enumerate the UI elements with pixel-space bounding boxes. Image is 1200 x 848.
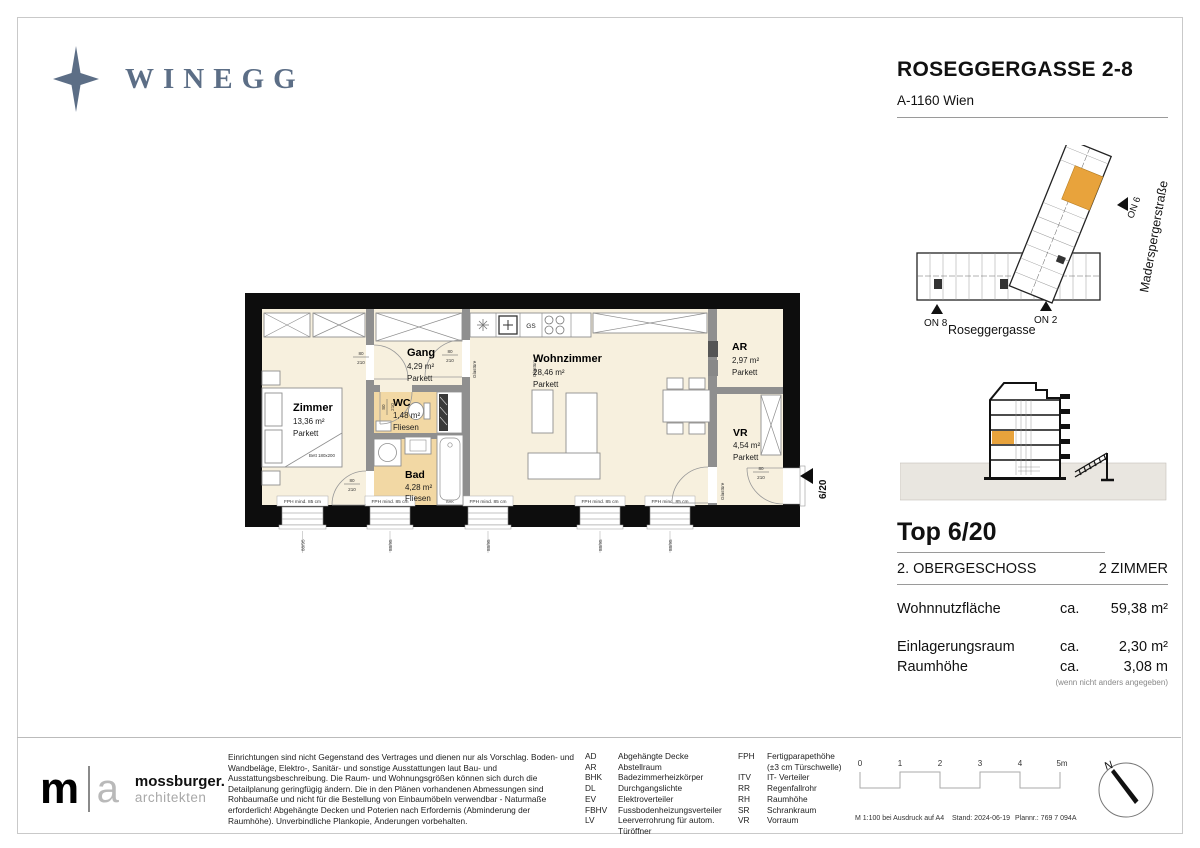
svg-text:Parkett: Parkett [732, 368, 758, 377]
svg-text:Stand: 2024-06-19: Stand: 2024-06-19 [952, 815, 1010, 822]
unit-title: Top 6/20 [897, 518, 1105, 553]
legend-row: RRRegenfallrohr [738, 783, 863, 794]
svg-text:0: 0 [858, 759, 863, 768]
site-marker-on6: ON 6 [1117, 195, 1143, 220]
site-plan: ON 8 ON 2 ON 6 Roseggergasse Madersperge… [900, 145, 1180, 345]
legend-label: Vorraum [767, 815, 798, 826]
legend-label: Schrankraum [767, 805, 816, 816]
svg-text:88/95: 88/95 [668, 539, 673, 551]
floor-plan: FPH mind. 85 cm 88/95 FPH mind. 85 cm 88… [240, 285, 830, 575]
unit-panel: Top 6/20 2. OBERGESCHOSS 2 ZIMMER Wohnnu… [897, 518, 1168, 687]
legend-label: IT- Verteiler [767, 772, 809, 783]
section-drawing [900, 370, 1170, 510]
svg-text:80: 80 [447, 349, 453, 354]
svg-text:80: 80 [358, 351, 364, 356]
legend-row: ARAbstellraum [585, 762, 737, 773]
dishwasher-label: GS [526, 323, 536, 330]
disclaimer: Einrichtungen sind nicht Gegenstand des … [228, 752, 576, 826]
legend-row: VRVorraum [738, 815, 863, 826]
scale-and-north: 0 1 2 3 4 5m M 1:100 bei Ausdruck auf A4… [850, 748, 1180, 838]
svg-text:6/20: 6/20 [818, 479, 829, 499]
glass-door-label: Glastüre [720, 482, 725, 500]
brand-name: WINEGG [125, 63, 305, 96]
svg-text:M 1:100 bei Ausdruck auf A4: M 1:100 bei Ausdruck auf A4 [855, 815, 944, 822]
metric-label: Einlagerungsraum [897, 639, 1060, 655]
legend-abbr: VR [738, 815, 767, 826]
bathtub: BHK [437, 435, 463, 505]
svg-text:Parkett: Parkett [407, 374, 433, 383]
legend-label: Abstellraum [618, 762, 662, 773]
legend-label: Regenfallrohr [767, 783, 817, 794]
legend-label: Fertigparapethöhe [767, 751, 835, 762]
svg-text:1: 1 [898, 759, 903, 768]
metric-value: 2,30 m² [1094, 639, 1168, 655]
svg-text:3: 3 [978, 759, 983, 768]
metric-wohnnutzflaeche: Wohnnutzfläche ca. 59,38 m² [897, 601, 1168, 617]
svg-text:FPH mind. 85 cm: FPH mind. 85 cm [371, 499, 408, 505]
svg-text:13,36 m²: 13,36 m² [293, 417, 325, 426]
nightstand [262, 471, 280, 485]
print-info: M 1:100 bei Ausdruck auf A4 Stand: 2024-… [855, 815, 1077, 822]
svg-text:FPH mind. 85 cm: FPH mind. 85 cm [469, 499, 506, 505]
metric-value: 3,08 m [1094, 659, 1168, 675]
legend-abbr: DL [585, 783, 618, 794]
legend-abbr: LV [585, 815, 618, 836]
svg-text:VR: VR [733, 427, 748, 439]
svg-text:4,28 m²: 4,28 m² [405, 483, 432, 492]
svg-text:2: 2 [938, 759, 943, 768]
architect-sub: architekten [135, 790, 225, 805]
street-maderspergerstrasse: Maderspergerstraße [1137, 180, 1170, 294]
svg-text:Gang: Gang [407, 347, 435, 359]
legend-abbr: FPH [738, 751, 767, 762]
legend-row: RHRaumhöhe [738, 794, 863, 805]
svg-text:Bad: Bad [405, 469, 425, 481]
metric-raumhoehe: Raumhöhe ca. 3,08 m [897, 659, 1168, 675]
washing-machine [374, 439, 401, 466]
legend-row: FBHVFussbodenheizungsverteiler [585, 805, 737, 816]
legend-row: (±3 cm Türschwelle) [738, 762, 863, 773]
legend-label: Leerverrohrung für autom. Türöffner [618, 815, 737, 836]
legend-label: Abgehängte Decke [618, 751, 689, 762]
legend-row: DLDurchgangslichte [585, 783, 737, 794]
svg-text:4,54 m²: 4,54 m² [733, 441, 760, 450]
metric-label: Raumhöhe [897, 659, 1060, 675]
room-label-gang: Gang 4,29 m² Parkett [407, 347, 435, 383]
architect-logo-a: a [97, 771, 119, 807]
svg-text:88/95: 88/95 [388, 539, 393, 551]
legend-abbr: AR [585, 762, 618, 773]
svg-text:4,29 m²: 4,29 m² [407, 362, 434, 371]
brand-logo: WINEGG [53, 46, 305, 112]
sink-basin-icon [499, 316, 517, 334]
legend-row: ADAbgehängte Decke [585, 751, 737, 762]
metric-value: 59,38 m² [1094, 601, 1168, 617]
metric-approx: ca. [1060, 601, 1094, 617]
legend-row: ITVIT- Verteiler [738, 772, 863, 783]
bed-label: Bett 180x200 [309, 453, 335, 458]
svg-text:80: 80 [758, 466, 764, 471]
legend-abbr: ITV [738, 772, 767, 783]
site-marker-on8: ON 8 [924, 304, 948, 329]
svg-text:5m: 5m [1056, 759, 1067, 768]
street-roseggergasse: Roseggergasse [948, 323, 1036, 337]
glass-door-label: Glastüre [472, 360, 477, 378]
svg-text:210: 210 [446, 358, 454, 363]
svg-text:Parkett: Parkett [533, 380, 559, 389]
svg-text:Fliesen: Fliesen [393, 423, 419, 432]
legend-abbr: FBHV [585, 805, 618, 816]
svg-text:Wohnzimmer: Wohnzimmer [533, 353, 603, 365]
svg-text:88/95: 88/95 [486, 539, 491, 551]
svg-text:210: 210 [757, 475, 765, 480]
svg-text:80: 80 [381, 404, 386, 410]
svg-text:210: 210 [357, 360, 365, 365]
scale-bar: 0 1 2 3 4 5m [858, 759, 1068, 788]
legend-column-2: FPHFertigparapethöhe (±3 cm Türschwelle)… [738, 751, 863, 826]
svg-text:ON 8: ON 8 [924, 318, 948, 329]
metric-einlagerungsraum: Einlagerungsraum ca. 2,30 m² [897, 639, 1168, 655]
svg-text:2,97 m²: 2,97 m² [732, 356, 759, 365]
project-header: ROSEGGERGASSE 2-8 A-1160 Wien [897, 58, 1168, 118]
svg-text:WC: WC [393, 397, 411, 409]
unit-note: (wenn nicht anders angegeben) [897, 678, 1168, 687]
project-title: ROSEGGERGASSE 2-8 [897, 58, 1168, 82]
section-building [984, 383, 1070, 479]
legend-abbr: RR [738, 783, 767, 794]
metric-label: Wohnnutzfläche [897, 601, 1060, 617]
legend-abbr: EV [585, 794, 618, 805]
legend-abbr: BHK [585, 772, 618, 783]
window: FPH mind. 85 cm 88/95 [277, 496, 328, 553]
metric-approx: ca. [1060, 639, 1094, 655]
architect-logo-m: m [40, 769, 79, 809]
svg-text:Parkett: Parkett [733, 453, 759, 462]
svg-text:88/95: 88/95 [598, 539, 603, 551]
svg-text:FPH mind. 85 cm: FPH mind. 85 cm [284, 499, 321, 505]
winegg-star-icon [53, 46, 99, 112]
legend-row: SRSchrankraum [738, 805, 863, 816]
legend-abbr [738, 762, 767, 773]
svg-text:Fliesen: Fliesen [405, 494, 431, 503]
svg-text:FPH mind. 85 cm: FPH mind. 85 cm [651, 499, 688, 505]
site-marker-on2: ON 2 [1034, 301, 1058, 326]
kitchen-counter: GS [470, 313, 591, 337]
window: FPH mind. 85 cm 88/95 [365, 496, 415, 553]
site-wing-roseggergasse [917, 253, 1100, 300]
legend-label: Raumhöhe [767, 794, 808, 805]
svg-text:FPH mind. 85 cm: FPH mind. 85 cm [581, 499, 618, 505]
svg-text:88/95: 88/95 [301, 539, 306, 551]
legend-abbr: SR [738, 805, 767, 816]
window: FPH mind. 85 cm 88/95 [575, 496, 625, 553]
legend-row: FPHFertigparapethöhe [738, 751, 863, 762]
svg-text:ON 2: ON 2 [1034, 315, 1058, 326]
bhk-label: BHK [446, 500, 454, 504]
svg-text:AR: AR [732, 341, 748, 353]
svg-text:1,48 m²: 1,48 m² [393, 411, 420, 420]
legend-label: Badezimmerheizkörper [618, 772, 703, 783]
window: FPH mind. 85 cm 88/95 [463, 496, 513, 553]
legend-column-1: ADAbgehängte Decke ARAbstellraum BHKBade… [585, 751, 737, 837]
entrance-opening [783, 466, 805, 506]
metric-approx: ca. [1060, 659, 1094, 675]
svg-text:Zimmer: Zimmer [293, 402, 333, 414]
section-highlight-floor [992, 431, 1014, 444]
unit-floor: 2. OBERGESCHOSS [897, 561, 1036, 577]
svg-text:210: 210 [348, 487, 356, 492]
legend-label: Durchgangslichte [618, 783, 682, 794]
svg-text:Plannr.: 769 7 094A: Plannr.: 769 7 094A [1015, 815, 1077, 822]
legend-abbr: AD [585, 751, 618, 762]
architect-name: mossburger. [135, 773, 225, 790]
nightstand [262, 371, 280, 385]
svg-text:ON 6: ON 6 [1125, 195, 1143, 220]
architect-logo-divider [88, 766, 90, 812]
project-subtitle: A-1160 Wien [897, 93, 1168, 118]
architect-logo: m a mossburger. architekten [40, 766, 225, 812]
legend-row: BHKBadezimmerheizkörper [585, 772, 737, 783]
legend-label: (±3 cm Türschwelle) [767, 762, 841, 773]
unit-floor-row: 2. OBERGESCHOSS 2 ZIMMER [897, 553, 1168, 585]
legend-abbr: RH [738, 794, 767, 805]
svg-text:28,46 m²: 28,46 m² [533, 368, 565, 377]
svg-text:80: 80 [349, 478, 355, 483]
footer-divider [17, 737, 1181, 738]
svg-text:Parkett: Parkett [293, 429, 319, 438]
legend-row: EVElektroverteiler [585, 794, 737, 805]
legend-row: LVLeerverrohrung für autom. Türöffner [585, 815, 737, 836]
window: FPH mind. 85 cm 88/95 [645, 496, 695, 553]
legend-label: Elektroverteiler [618, 794, 673, 805]
legend-label: Fussbodenheizungsverteiler [618, 805, 722, 816]
unit-rooms: 2 ZIMMER [1099, 561, 1168, 577]
north-arrow: N [1099, 759, 1153, 817]
svg-text:4: 4 [1018, 759, 1023, 768]
plan-sheet: WINEGG ROSEGGERGASSE 2-8 A-1160 Wien [0, 0, 1200, 848]
